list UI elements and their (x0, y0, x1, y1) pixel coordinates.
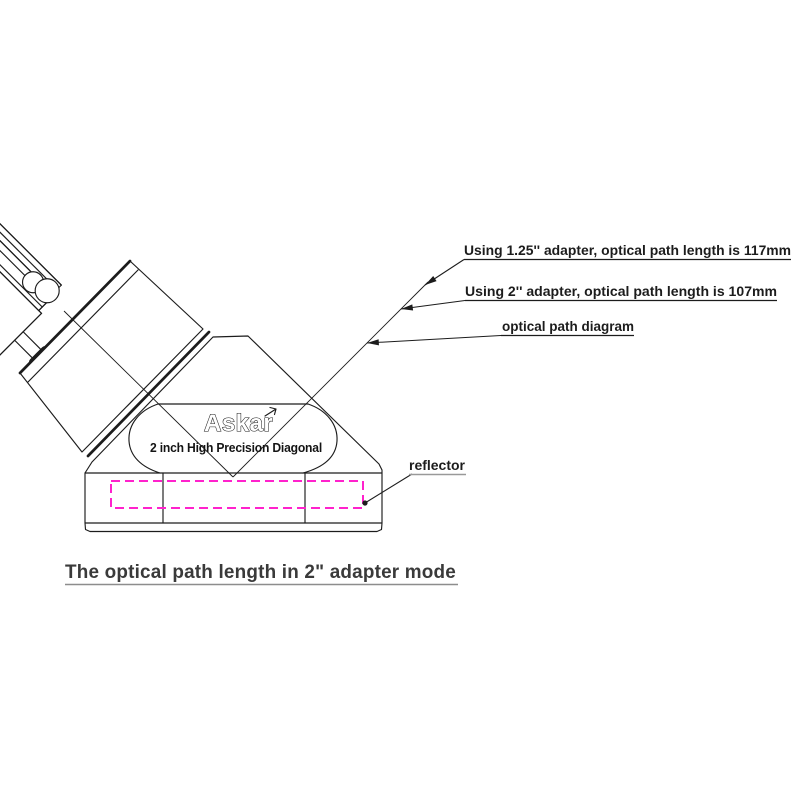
product-label-text: 2 inch High Precision Diagonal (150, 441, 322, 455)
figure-caption: The optical path length in 2" adapter mo… (65, 561, 456, 583)
leader-optical-path (367, 336, 501, 344)
label-optical-path: optical path diagram (502, 319, 634, 334)
leader-117mm (425, 260, 464, 286)
knob-stem-right (23, 332, 41, 350)
label-adapter-125: Using 1.25'' adapter, optical path lengt… (464, 243, 791, 258)
base-plate (85, 523, 382, 532)
label-adapter-2: Using 2'' adapter, optical path length i… (465, 284, 777, 299)
brand-logo-text: Askar (204, 410, 273, 437)
reflector-leader-dot (362, 500, 367, 505)
technical-drawing-page: Using 1.25'' adapter, optical path lengt… (0, 0, 800, 800)
leader-107mm (401, 301, 465, 310)
diagonal-optical-path-diagram: Using 1.25'' adapter, optical path lengt… (0, 0, 800, 800)
knob-stem-left (15, 340, 33, 358)
label-reflector: reflector (409, 458, 466, 473)
